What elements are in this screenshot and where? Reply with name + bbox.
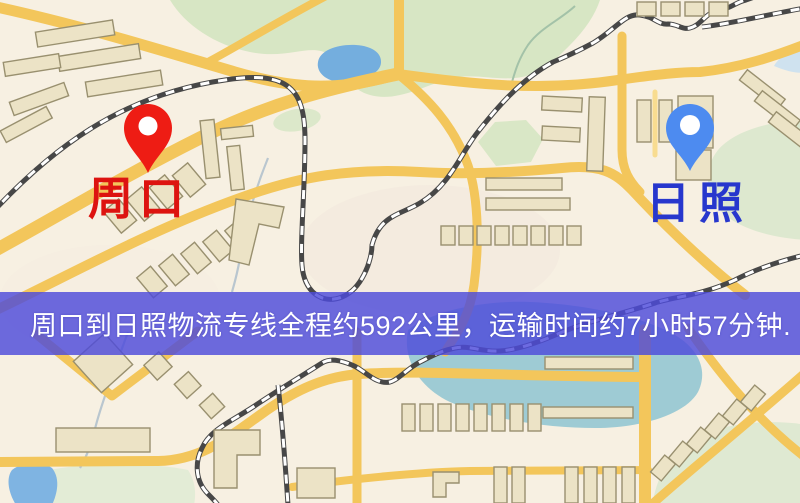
map-shape <box>297 468 335 498</box>
map-shape <box>477 226 491 245</box>
map-shape <box>545 357 633 369</box>
map-shape <box>709 2 728 16</box>
route-info-text: 周口到日照物流专线全程约592公里，运输时间约7小时57分钟. <box>30 304 791 343</box>
map-shape <box>441 226 455 245</box>
map-shape <box>637 2 656 16</box>
map-shape <box>543 407 633 418</box>
map-shape <box>9 463 58 503</box>
map-shape <box>492 404 505 431</box>
map-shape <box>542 96 583 112</box>
map-shape <box>438 404 451 431</box>
map-shape <box>512 467 525 503</box>
origin-city-label: 周口 <box>88 173 190 224</box>
map-shape <box>459 226 473 245</box>
map-shape <box>542 126 581 142</box>
map-shape <box>402 404 415 431</box>
map-shape <box>685 2 704 16</box>
map-shape <box>661 2 680 16</box>
map-shape <box>474 404 487 431</box>
map-shape <box>603 467 616 503</box>
map-shape <box>139 117 158 136</box>
map-shape <box>622 467 635 503</box>
map-shape <box>567 226 581 245</box>
map-shape <box>510 404 523 431</box>
destination-city-label: 日照 <box>646 179 752 228</box>
map-shape <box>56 428 150 452</box>
map-shape <box>486 198 570 210</box>
map-shape <box>531 226 545 245</box>
map-shape <box>549 226 563 245</box>
map-shape <box>680 115 700 135</box>
map-shape <box>221 125 254 139</box>
map-shape <box>494 467 507 503</box>
map-shape <box>420 404 433 431</box>
route-info-banner: 周口到日照物流专线全程约592公里，运输时间约7小时57分钟. <box>0 292 800 355</box>
map-shape <box>456 404 469 431</box>
map-svg: 周口 日照 <box>0 0 800 503</box>
map-shape <box>495 226 509 245</box>
map-shape <box>513 226 527 245</box>
map-shape <box>637 100 651 142</box>
map-shape <box>40 464 195 503</box>
map-shape <box>565 467 578 503</box>
map-shape <box>528 404 541 431</box>
map-shape <box>584 467 597 503</box>
map-canvas[interactable]: 周口 日照 <box>0 0 800 503</box>
map-shape <box>486 178 562 190</box>
map-shape <box>587 97 606 172</box>
